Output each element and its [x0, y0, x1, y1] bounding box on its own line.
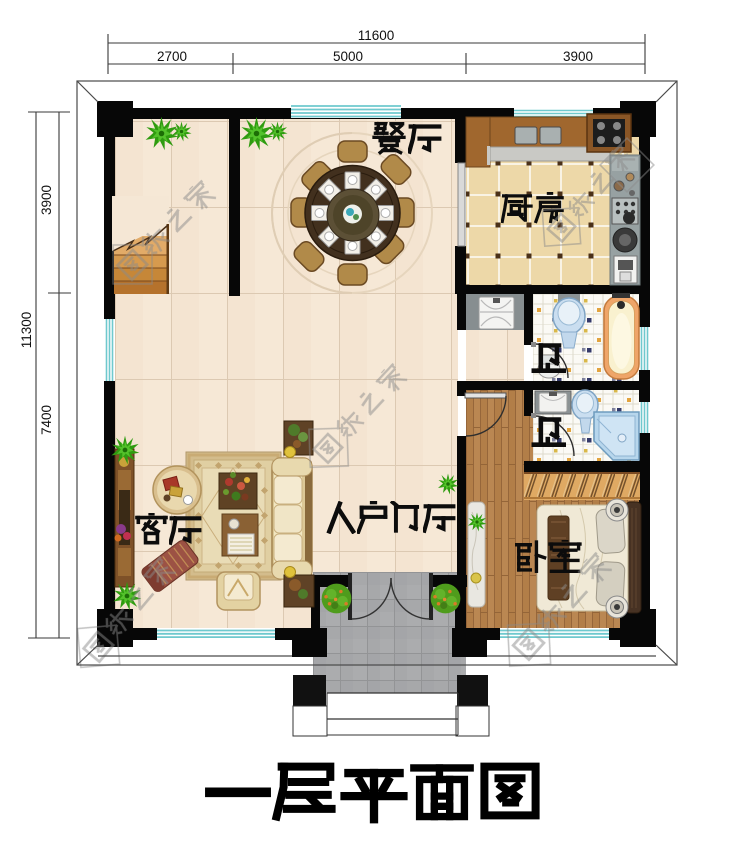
svg-text:3900: 3900	[563, 49, 593, 64]
svg-text:5000: 5000	[333, 49, 363, 64]
svg-text:3900: 3900	[39, 185, 54, 215]
svg-text:7400: 7400	[39, 405, 54, 435]
svg-text:2700: 2700	[157, 49, 187, 64]
svg-text:11600: 11600	[358, 28, 395, 43]
svg-text:11300: 11300	[19, 312, 34, 349]
